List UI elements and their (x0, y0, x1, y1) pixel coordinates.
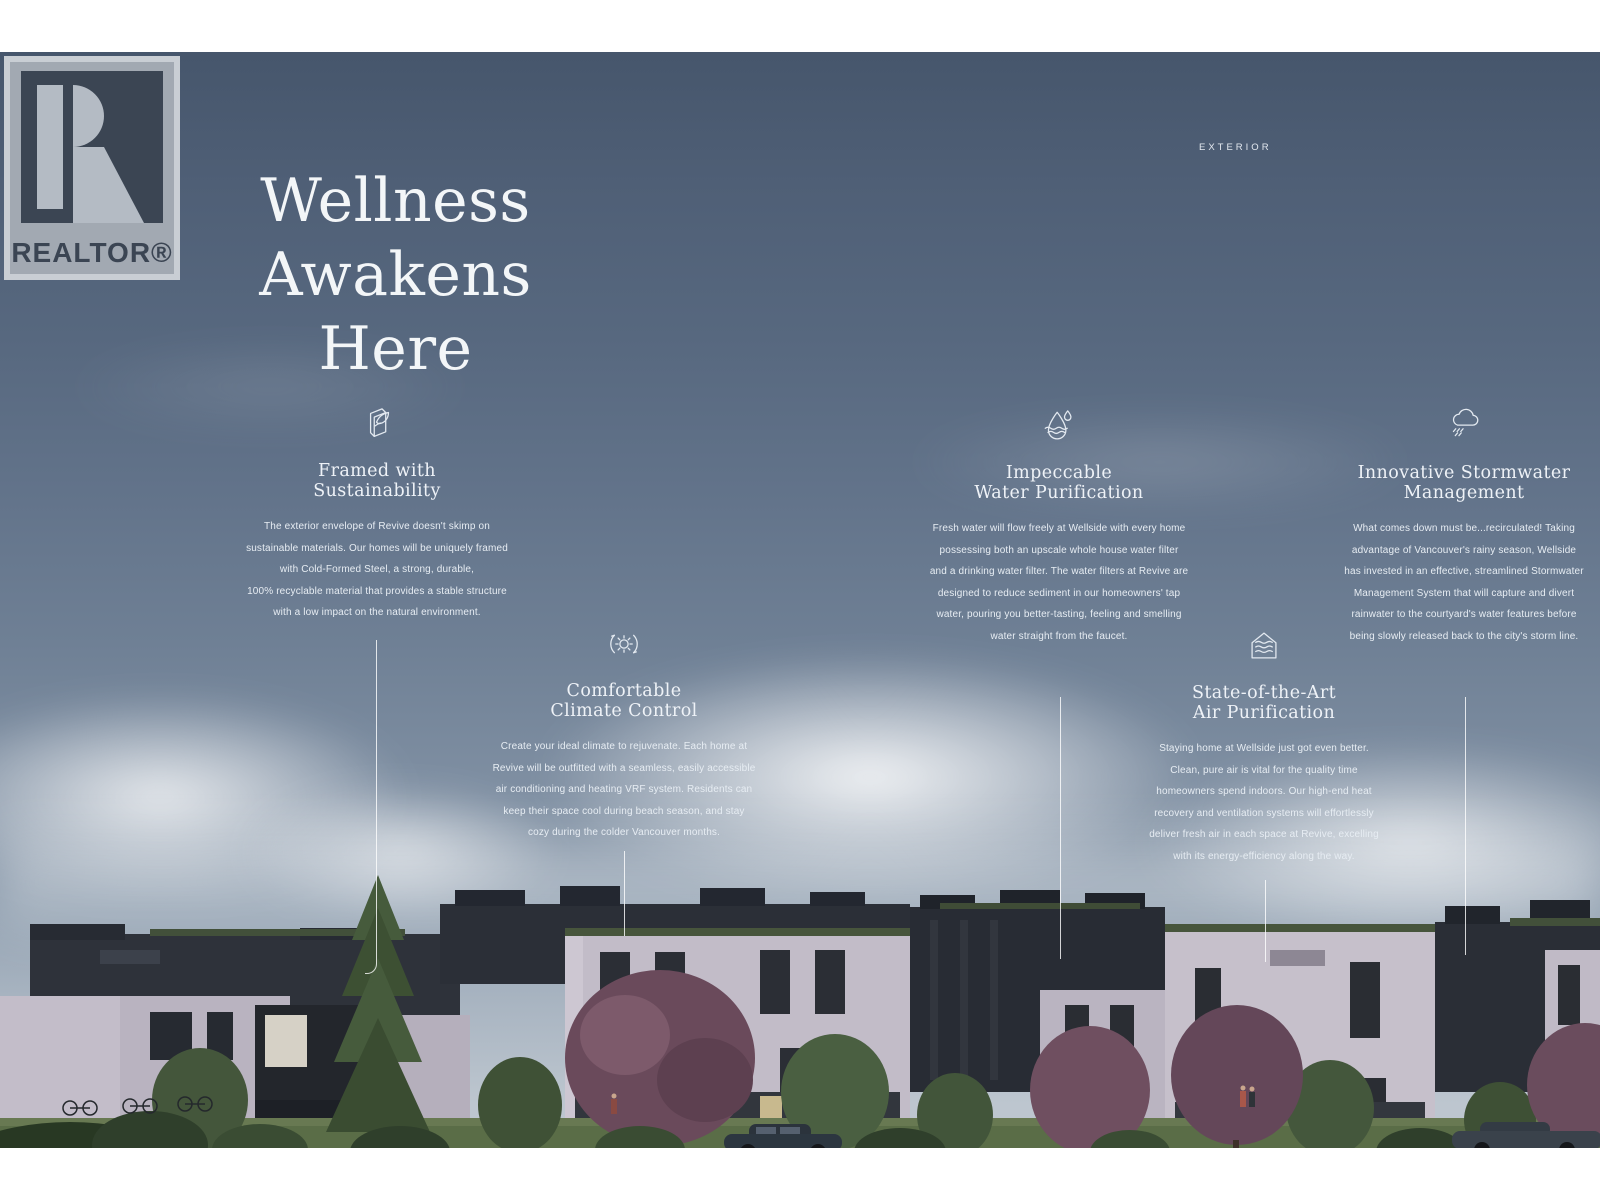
brochure-page: Wellness Awakens Here EXTERIOR Framed wi… (0, 0, 1600, 1200)
leader-line-sustainability (365, 640, 377, 974)
water-drop-icon (899, 404, 1219, 453)
leaf-board-icon (217, 402, 537, 451)
realtor-wordmark: REALTOR® (11, 237, 172, 268)
feature-heading: Innovative Stormwater Management (1304, 463, 1600, 503)
leader-line-climate (624, 851, 625, 936)
leader-line-water (1060, 697, 1061, 959)
feature-heading: Comfortable Climate Control (464, 681, 784, 721)
feature-body: What comes down must be...recirculated! … (1304, 518, 1600, 647)
feature-body: Create your ideal climate to rejuvenate.… (464, 736, 784, 844)
feature-stormwater: Innovative Stormwater Management What co… (1304, 404, 1600, 647)
leader-line-air (1265, 880, 1266, 962)
feature-climate-control: Comfortable Climate Control Create your … (464, 622, 784, 844)
exterior-label: EXTERIOR (1199, 142, 1272, 153)
feature-sustainability: Framed with Sustainability The exterior … (217, 402, 537, 624)
sun-cycle-icon (464, 622, 784, 671)
feature-air-purification: State-of-the-Art Air Purification Stayin… (1104, 624, 1424, 867)
rain-cloud-icon (1304, 404, 1600, 453)
realtor-logo: REALTOR® (4, 56, 180, 280)
feature-heading: State-of-the-Art Air Purification (1104, 683, 1424, 723)
feature-heading: Impeccable Water Purification (899, 463, 1219, 503)
title-line-2: Awakens Here (183, 238, 608, 386)
feature-heading: Framed with Sustainability (217, 461, 537, 501)
hero-photo: Wellness Awakens Here EXTERIOR Framed wi… (0, 52, 1600, 1148)
feature-water-purification: Impeccable Water Purification Fresh wate… (899, 404, 1219, 647)
page-title: Wellness Awakens Here (183, 164, 608, 386)
leader-line-stormwater (1465, 697, 1466, 955)
title-line-1: Wellness (183, 164, 608, 238)
feature-body: Staying home at Wellside just got even b… (1104, 738, 1424, 867)
feature-body: The exterior envelope of Revive doesn't … (217, 516, 537, 624)
